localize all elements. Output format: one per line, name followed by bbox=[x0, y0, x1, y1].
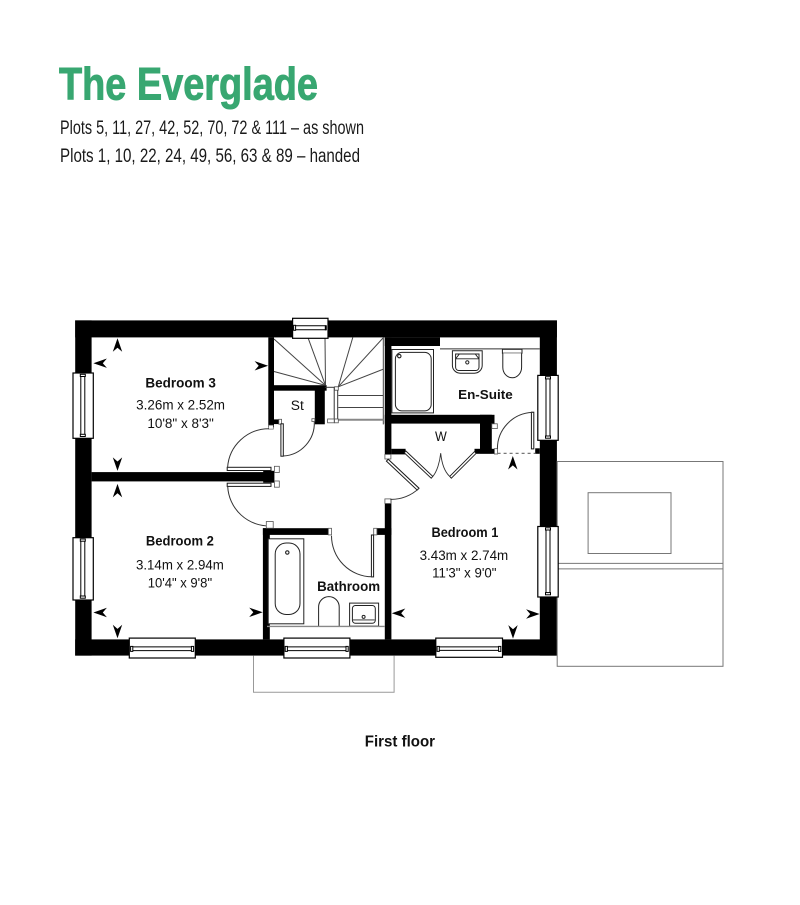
svg-text:W: W bbox=[435, 428, 447, 444]
svg-text:Bathroom: Bathroom bbox=[317, 579, 380, 594]
svg-text:St: St bbox=[291, 398, 304, 413]
svg-text:3.26m x 2.52m: 3.26m x 2.52m bbox=[136, 397, 225, 412]
svg-text:The Everglade: The Everglade bbox=[59, 59, 318, 110]
svg-text:Bedroom 3: Bedroom 3 bbox=[145, 375, 216, 391]
svg-text:Bedroom 2: Bedroom 2 bbox=[146, 533, 214, 549]
svg-text:10'8" x 8'3": 10'8" x 8'3" bbox=[147, 416, 214, 431]
svg-text:11'3" x 9'0": 11'3" x 9'0" bbox=[432, 566, 497, 581]
svg-text:En-Suite: En-Suite bbox=[458, 387, 513, 402]
svg-text:3.43m x 2.74m: 3.43m x 2.74m bbox=[420, 548, 509, 563]
svg-text:3.14m x 2.94m: 3.14m x 2.94m bbox=[136, 557, 224, 572]
svg-text:Plots 1, 10, 22, 24, 49, 56, 6: Plots 1, 10, 22, 24, 49, 56, 63 & 89 – h… bbox=[60, 146, 360, 167]
svg-text:10'4" x 9'8": 10'4" x 9'8" bbox=[148, 575, 213, 590]
svg-text:Plots 5, 11, 27, 42, 52, 70, 7: Plots 5, 11, 27, 42, 52, 70, 72 & 111 – … bbox=[60, 118, 364, 139]
svg-text:First floor: First floor bbox=[365, 734, 435, 751]
svg-text:Bedroom 1: Bedroom 1 bbox=[431, 524, 498, 540]
